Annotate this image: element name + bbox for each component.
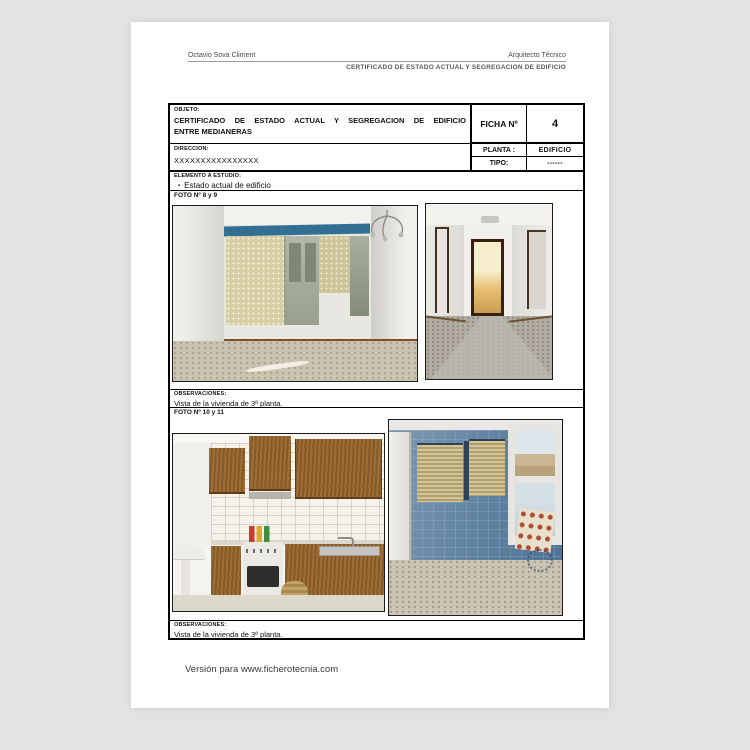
ph3-hood-cabinet <box>249 436 291 491</box>
ph3-floor <box>173 595 384 611</box>
ph1-blind-left <box>226 236 286 325</box>
tipo-row: TIPO: ------ <box>472 157 583 170</box>
planta-row: PLANTA : EDIFICIO <box>472 144 583 157</box>
elemento-row: ELEMENTO A ESTUDIO: ▪Estado actual de ed… <box>170 172 583 191</box>
ph4-decorative-tile-band <box>515 508 556 553</box>
tipo-label: TIPO: <box>472 157 527 170</box>
elemento-value: Estado actual de edificio <box>184 181 271 190</box>
ph3-cleaning-bottles <box>249 526 276 542</box>
direccion-label: DIRECCION: <box>174 146 466 153</box>
photo-blue-gallery <box>388 419 563 616</box>
planta-value: EDIFICIO <box>527 144 583 156</box>
observaciones-2-row: OBSERVACIONES: Vista de la vivienda de 3… <box>170 621 583 638</box>
ph1-window-frame <box>286 236 320 325</box>
ficha-row: FICHA Nº 4 <box>472 105 583 144</box>
ph3-oven-window <box>247 566 279 587</box>
photo-living-room <box>172 205 418 382</box>
chandelier-icon <box>359 208 415 244</box>
ph3-faucet <box>338 537 355 546</box>
ph4-bamboo-blind-right <box>469 441 505 496</box>
ph3-upper-cabinet-right <box>295 439 382 499</box>
header-role: Arquitecto Técnico <box>508 52 566 59</box>
ph2-right-doorway <box>527 230 546 309</box>
ph1-window-pane <box>350 236 369 317</box>
observaciones-1-row: OBSERVACIONES: Vista de la vivienda de 3… <box>170 390 583 408</box>
photo-kitchen <box>172 433 385 612</box>
ph3-upper-cabinet-left <box>209 448 245 494</box>
observaciones-1-value: Vista de la vivienda de 3ª planta. <box>174 399 579 408</box>
ph1-left-wall <box>173 206 224 341</box>
foto-10-11-label: FOTO Nº 10 y 11 <box>174 409 579 416</box>
ph3-stove-knobs <box>246 549 280 553</box>
objeto-title: CERTIFICADO DE ESTADO ACTUAL Y SEGREGACI… <box>174 115 466 138</box>
foto-8-9-label: FOTO Nº 8 y 9 <box>174 192 579 199</box>
ph3-table-leg <box>181 560 189 599</box>
bullet-icon: ▪ <box>178 183 180 189</box>
objeto-title-line1: CERTIFICADO DE ESTADO ACTUAL Y SEGREGACI… <box>174 115 466 127</box>
observaciones-2-value: Vista de la vivienda de 3ª planta. <box>174 630 579 639</box>
planta-label: PLANTA : <box>472 144 527 156</box>
elemento-item: ▪Estado actual de edificio <box>174 181 579 190</box>
ph4-white-door <box>389 432 411 576</box>
ph1-window-bay <box>224 225 370 341</box>
objeto-cell: OBJETO: CERTIFICADO DE ESTADO ACTUAL Y S… <box>170 105 470 144</box>
direccion-cell: DIRECCION: XXXXXXXXXXXXXXXX <box>170 144 470 170</box>
ficha-number: 4 <box>527 105 583 142</box>
photo-hallway <box>425 203 553 380</box>
elemento-label: ELEMENTO A ESTUDIO: <box>174 173 579 180</box>
header-doc-title: CERTIFICADO DE ESTADO ACTUAL Y SEGREGACI… <box>188 64 566 71</box>
observaciones-1-label: OBSERVACIONES: <box>174 391 579 398</box>
ph1-blind-right <box>319 236 350 294</box>
ph3-lower-cabinet-left <box>211 546 241 601</box>
ph2-floor-highlight <box>426 316 552 379</box>
ph3-left-wall <box>173 443 211 544</box>
ph2-left-doorway <box>435 227 449 313</box>
ph2-lit-end-doorway <box>471 239 504 316</box>
ph2-terrazzo-floor <box>426 316 552 379</box>
objeto-direccion-column: OBJETO: CERTIFICADO DE ESTADO ACTUAL Y S… <box>170 105 472 170</box>
observaciones-2-label: OBSERVACIONES: <box>174 622 579 629</box>
objeto-label: OBJETO: <box>174 107 466 114</box>
ph3-small-table <box>173 544 205 560</box>
objeto-title-line2: ENTRE MEDIANERAS <box>174 126 466 138</box>
document-page: Octavio Sova Climent Arquitecto Técnico … <box>131 22 609 708</box>
footer-text: Versión para www.ficherotecnia.com <box>185 664 338 675</box>
ph4-bamboo-blind-left <box>417 445 464 502</box>
header-author-row: Octavio Sova Climent Arquitecto Técnico <box>188 52 566 62</box>
document-header: Octavio Sova Climent Arquitecto Técnico … <box>188 52 566 71</box>
screenshot-background: Octavio Sova Climent Arquitecto Técnico … <box>0 0 750 750</box>
table-header-section: OBJETO: CERTIFICADO DE ESTADO ACTUAL Y S… <box>170 105 583 172</box>
ph3-extractor-hood <box>249 492 291 499</box>
ph3-sink <box>319 546 380 557</box>
direccion-value: XXXXXXXXXXXXXXXX <box>174 156 466 165</box>
ph4-window-view-buildings <box>515 430 555 476</box>
ph1-skirting <box>224 339 417 341</box>
ficha-column: FICHA Nº 4 PLANTA : EDIFICIO TIPO: -----… <box>472 105 583 170</box>
tipo-value: ------ <box>527 157 583 170</box>
ficha-label: FICHA Nº <box>472 105 527 142</box>
header-author: Octavio Sova Climent <box>188 52 255 59</box>
ph2-ceiling-lamp <box>481 216 499 223</box>
